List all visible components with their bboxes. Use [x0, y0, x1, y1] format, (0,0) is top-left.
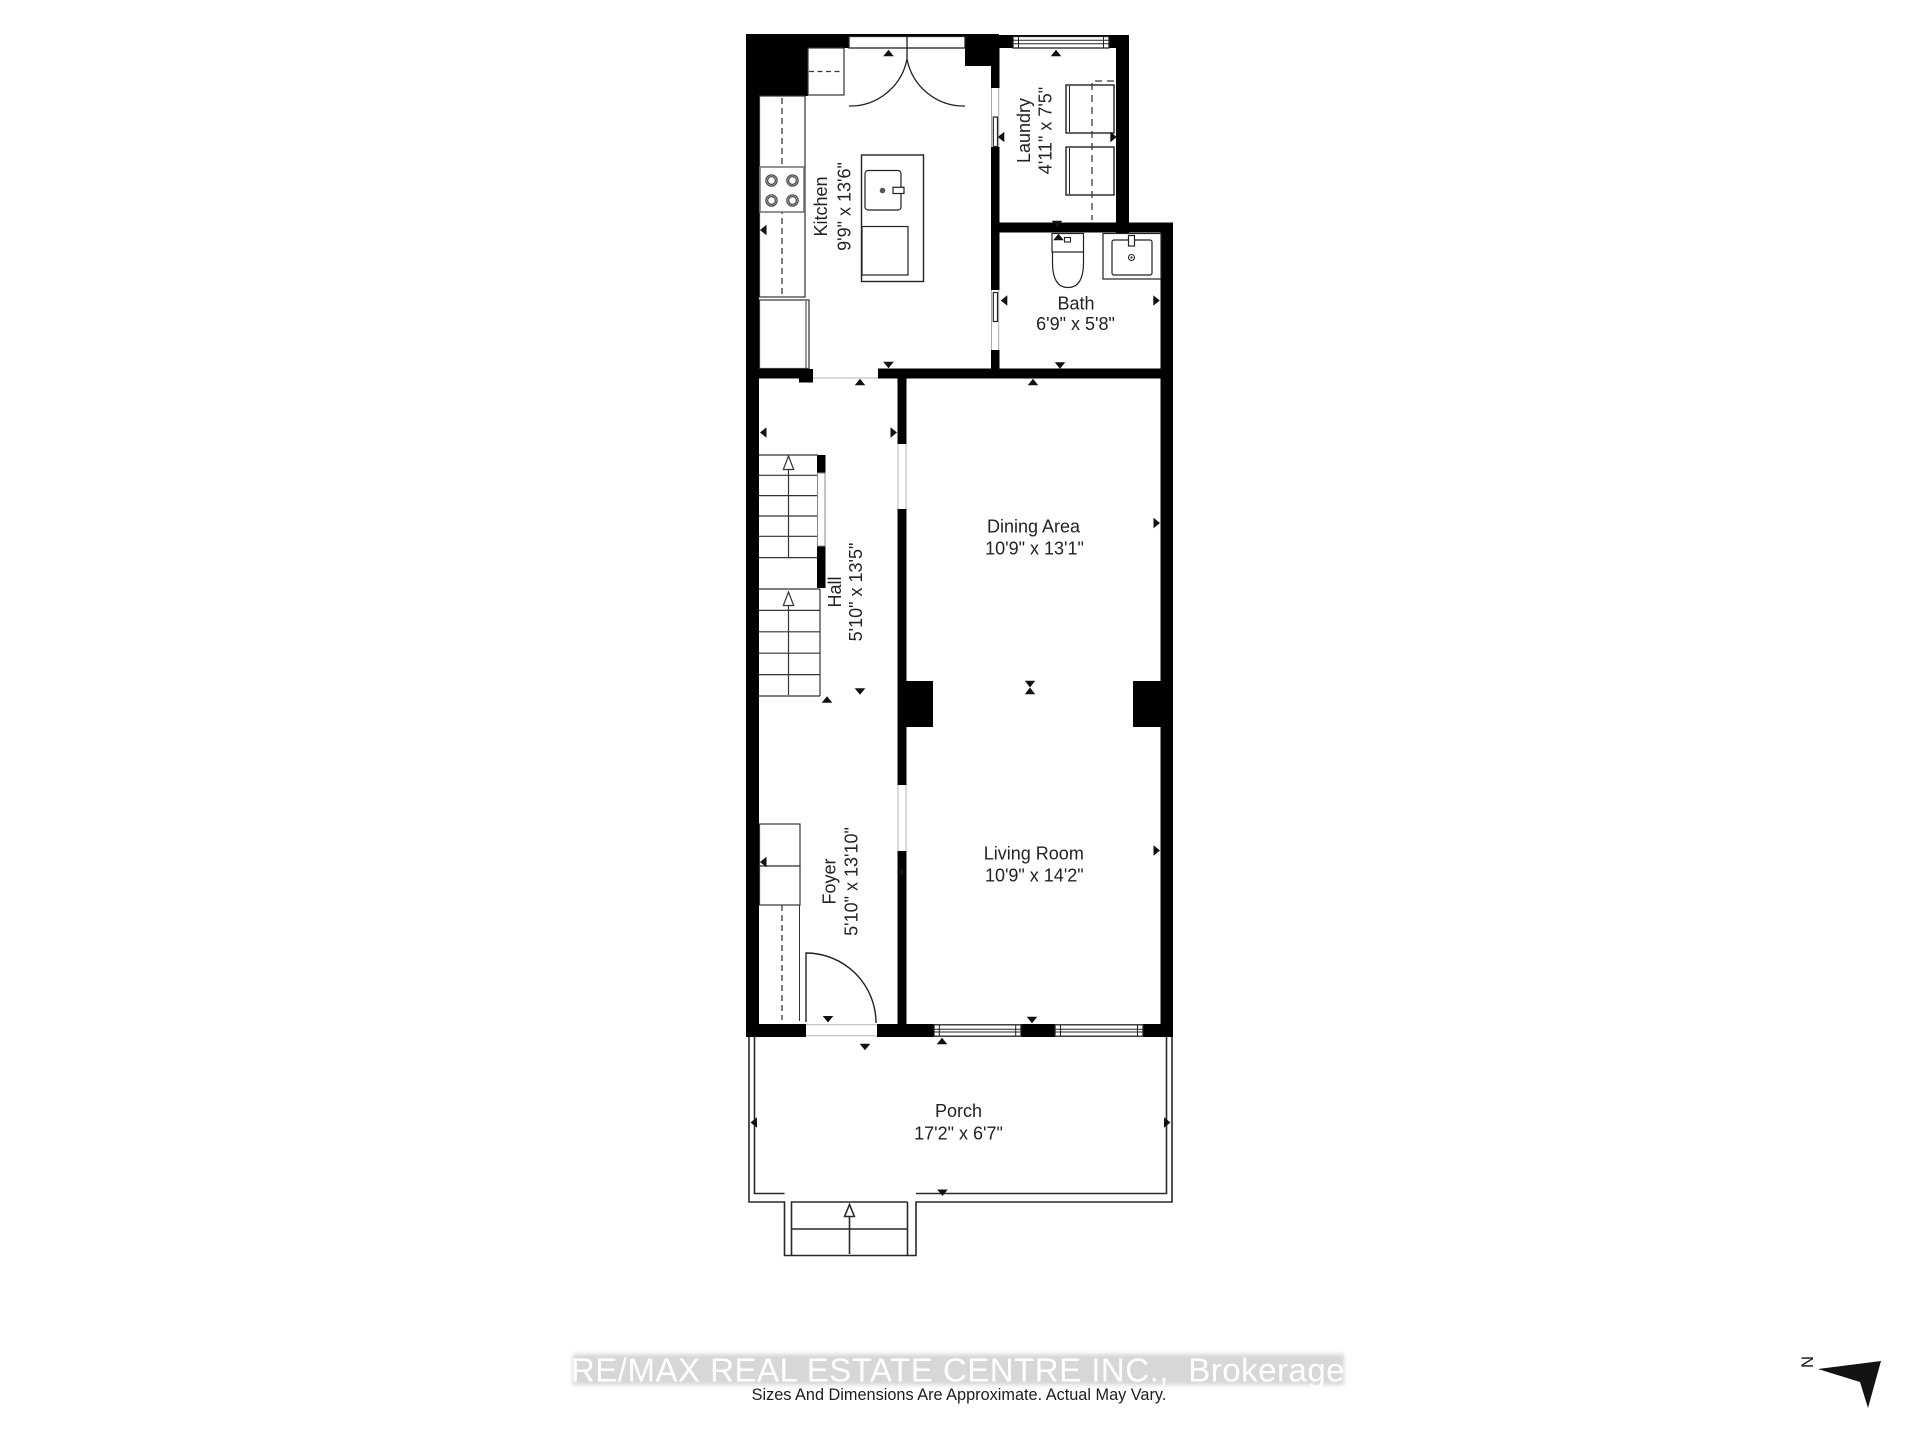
svg-text:Kitchen: Kitchen: [811, 176, 831, 236]
svg-text:6'9" x 5'8": 6'9" x 5'8": [1036, 314, 1115, 334]
svg-text:Laundry: Laundry: [1014, 98, 1034, 163]
svg-text:RE/MAX REAL ESTATE CENTRE INC.: RE/MAX REAL ESTATE CENTRE INC., Brokerag…: [571, 1352, 1345, 1389]
svg-text:5'10" x 13'10": 5'10" x 13'10": [841, 827, 861, 936]
svg-text:Porch: Porch: [935, 1101, 982, 1121]
svg-text:Bath: Bath: [1057, 294, 1094, 314]
svg-text:Sizes And Dimensions Are Appro: Sizes And Dimensions Are Approximate. Ac…: [752, 1386, 1167, 1404]
svg-text:10'9" x 13'1": 10'9" x 13'1": [985, 539, 1084, 559]
svg-text:9'9" x 13'6": 9'9" x 13'6": [835, 162, 855, 251]
svg-text:Dining Area: Dining Area: [987, 516, 1081, 536]
svg-text:4'11" x 7'5": 4'11" x 7'5": [1035, 87, 1055, 174]
svg-text:N: N: [1798, 1356, 1816, 1368]
svg-text:Living Room: Living Room: [984, 844, 1084, 864]
svg-text:Foyer: Foyer: [820, 858, 840, 904]
svg-text:17'2" x 6'7": 17'2" x 6'7": [914, 1124, 1003, 1144]
svg-text:10'9" x 14'2": 10'9" x 14'2": [985, 866, 1084, 886]
svg-text:Hall: Hall: [825, 576, 845, 607]
svg-text:5'10" x 13'5": 5'10" x 13'5": [846, 543, 866, 642]
